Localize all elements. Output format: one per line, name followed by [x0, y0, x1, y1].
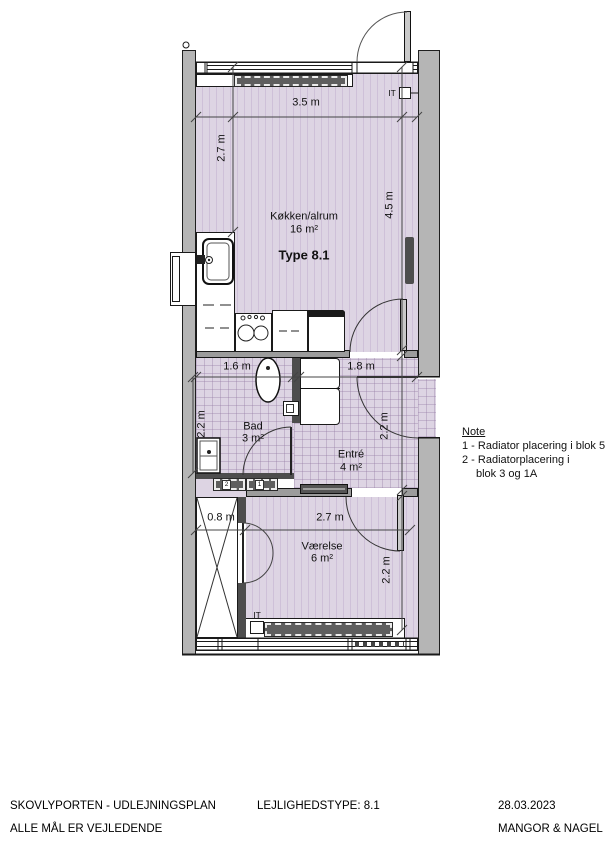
note-title: Note	[462, 425, 609, 439]
floor-plan-sheet: 2 1	[0, 0, 609, 851]
wall-left	[182, 50, 196, 655]
kitchen-counter-left	[196, 232, 235, 352]
dim-bad-height: 2.2 m	[197, 410, 208, 438]
wall-bedroom-north-right	[402, 488, 418, 497]
note-line-1: 1 - Radiator placering i blok 5	[462, 439, 609, 453]
room-label-vaerelse: Værelse	[302, 542, 343, 553]
dryer-unit	[300, 388, 340, 425]
note-line-3: blok 3 og 1A	[462, 467, 609, 481]
dim-kitchen-width: 3.5 m	[292, 98, 320, 109]
kitchen-stove	[235, 313, 272, 352]
room-area-kitchen: 16 m²	[290, 225, 318, 236]
wall-right-upper	[418, 50, 440, 377]
room-area-entre: 4 m²	[340, 463, 362, 474]
it-outlet-bottom-box	[250, 621, 264, 634]
radiator-tag-2: 2	[222, 480, 231, 490]
it-outlet-bottom-label: IT	[253, 611, 261, 620]
footer-project-title: SKOVLYPORTEN - UDLEJNINGSPLAN	[10, 800, 216, 812]
window-band-bottom	[196, 638, 418, 651]
room-area-bad: 3 m²	[242, 434, 264, 445]
dim-entre-height: 2.2 m	[380, 412, 391, 440]
kitchen-counter-mid	[272, 310, 308, 352]
room-label-kitchen: Køkken/alrum	[270, 212, 338, 223]
washer-unit	[300, 358, 340, 389]
it-outlet-top-box	[399, 87, 411, 99]
footer-company: MANGOR & NAGEL	[498, 823, 603, 835]
radiator-kitchen-east-wall	[405, 237, 414, 284]
wall-bad-south	[196, 473, 294, 479]
door-leaf-kitchen-entry	[400, 299, 407, 351]
note-line-2: 2 - Radiatorplacering i	[462, 453, 609, 467]
room-label-entre: Entré	[338, 450, 364, 461]
entry-bench	[300, 484, 348, 494]
wall-right-lower	[418, 437, 440, 655]
unit-type-label: Type 8.1	[278, 249, 329, 262]
door-leaf-terrace	[404, 11, 411, 62]
dim-vaerelse-height: 2.2 m	[382, 556, 393, 584]
footer-unit-type: LEJLIGHEDSTYPE: 8.1	[257, 800, 380, 812]
dim-kitchen-right-height: 4.5 m	[385, 191, 396, 219]
dim-entre-width: 1.8 m	[347, 362, 375, 373]
room-label-bad: Bad	[243, 422, 263, 433]
radiator-bedroom-window	[265, 623, 392, 636]
dim-bad-width: 1.6 m	[223, 362, 251, 373]
dim-kitchen-left-height: 2.7 m	[217, 134, 228, 162]
dim-closet-width: 0.8 m	[207, 513, 235, 524]
footer-date: 28.03.2023	[498, 800, 556, 812]
it-outlet-top-label: IT	[388, 89, 396, 98]
floor-entry-door-nook	[418, 379, 436, 437]
window-band-top	[196, 62, 418, 74]
floor-bathroom	[196, 358, 300, 478]
room-area-vaerelse: 6 m²	[311, 554, 333, 565]
dim-vaerelse-width: 2.7 m	[316, 513, 344, 524]
wall-kitchen-south-stub	[404, 350, 418, 358]
note-block: Note 1 - Radiator placering i blok 5 2 -…	[462, 425, 609, 481]
shaft-duct	[172, 256, 180, 302]
radiator-tag-1: 1	[255, 480, 264, 490]
footer-disclaimer: ALLE MÅL ER VEJLEDENDE	[10, 823, 162, 835]
wall-closet-east-upper	[238, 497, 246, 523]
radiator-kitchen-window	[235, 76, 347, 86]
door-leaf-bedroom	[397, 495, 404, 551]
wall-closet-east-lower	[238, 583, 246, 638]
bad-service-box-inner	[286, 404, 294, 413]
kitchen-fridge-top	[308, 310, 345, 317]
